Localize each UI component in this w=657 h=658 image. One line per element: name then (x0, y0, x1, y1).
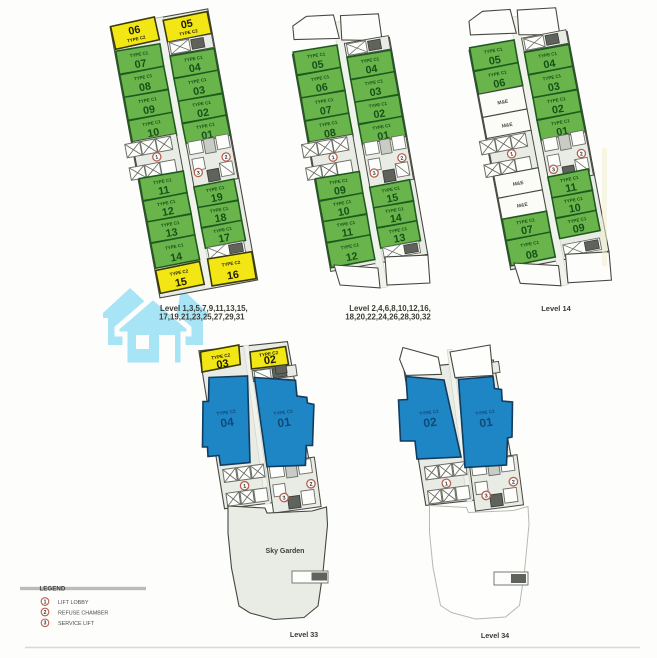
svg-text:LIFT LOBBY: LIFT LOBBY (58, 600, 89, 606)
svg-text:SERVICE LIFT: SERVICE LIFT (58, 621, 95, 627)
svg-text:2: 2 (44, 610, 47, 616)
svg-text:LEGEND: LEGEND (40, 586, 66, 593)
svg-text:15: 15 (174, 276, 188, 290)
svg-text:09: 09 (572, 222, 586, 236)
svg-text:04: 04 (219, 415, 234, 431)
svg-text:3: 3 (44, 621, 47, 627)
svg-text:REFUSE CHAMBER: REFUSE CHAMBER (58, 610, 108, 616)
svg-text:03: 03 (216, 358, 230, 372)
svg-text:Sky Garden: Sky Garden (266, 548, 305, 555)
svg-text:02: 02 (422, 415, 437, 431)
svg-text:Level 33: Level 33 (290, 630, 318, 639)
svg-text:02: 02 (263, 354, 277, 368)
svg-text:17,19,21,23,25,27,29,31: 17,19,21,23,25,27,29,31 (159, 313, 245, 322)
svg-text:06: 06 (492, 77, 506, 91)
svg-text:01: 01 (478, 415, 493, 431)
svg-text:Level 14: Level 14 (541, 304, 571, 313)
svg-text:14: 14 (169, 251, 183, 265)
svg-text:12: 12 (345, 250, 359, 264)
svg-text:01: 01 (276, 415, 291, 431)
svg-text:18,20,22,24,26,28,30,32: 18,20,22,24,26,28,30,32 (345, 313, 431, 322)
svg-text:1: 1 (44, 599, 47, 605)
svg-text:16: 16 (226, 269, 240, 283)
svg-text:08: 08 (525, 248, 539, 262)
svg-text:Level 34: Level 34 (481, 631, 509, 640)
